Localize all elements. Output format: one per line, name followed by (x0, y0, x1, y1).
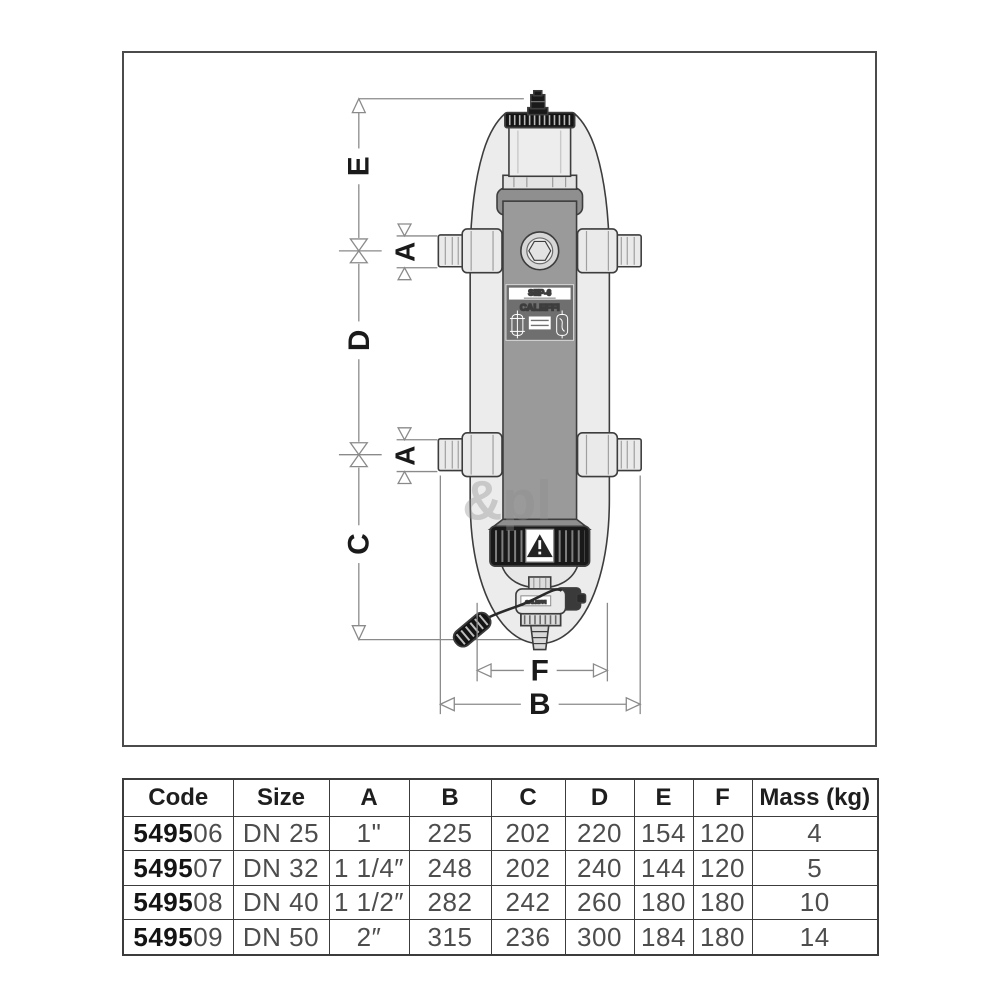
code-prefix: 5495 (133, 853, 193, 883)
table-header-row: Code Size A B C D E F Mass (kg) (123, 779, 878, 817)
cell-d: 240 (565, 851, 634, 885)
dim-label-C: C (343, 533, 376, 555)
open-triangle-arrow-icon (352, 99, 365, 113)
cell-c: 236 (491, 920, 565, 955)
cell-c: 202 (491, 817, 565, 851)
table-row: 549506 DN 25 1" 225 202 220 154 120 4 (123, 817, 878, 851)
table-row: 549509 DN 50 2″ 315 236 300 184 180 14 (123, 920, 878, 955)
bowtie-level-marker-icon (339, 239, 382, 263)
code-prefix: 5495 (133, 887, 193, 917)
cell-code: 549506 (123, 817, 233, 851)
open-triangle-arrow-icon (626, 698, 640, 711)
cell-size: DN 25 (233, 817, 329, 851)
cell-size: DN 32 (233, 851, 329, 885)
open-triangle-arrow-icon (398, 268, 411, 280)
union-nut-bottom-right (578, 433, 642, 477)
cell-f: 120 (693, 851, 752, 885)
cell-b: 315 (409, 920, 491, 955)
vent-cap (528, 91, 548, 115)
hose-barb (531, 626, 549, 650)
hydraulic-separator-drawing: E D C A A (124, 53, 875, 745)
open-triangle-arrow-icon (477, 664, 491, 677)
product-label: SEP-6 CALEFFI (506, 285, 574, 341)
cell-mass: 14 (752, 920, 878, 955)
hose-ring (521, 614, 561, 626)
cell-code: 549508 (123, 885, 233, 919)
union-nut-top-right (578, 229, 642, 273)
cell-mass: 4 (752, 817, 878, 851)
cell-d: 220 (565, 817, 634, 851)
cell-d: 260 (565, 885, 634, 919)
cell-f: 180 (693, 920, 752, 955)
dim-label-A-bottom: A (389, 446, 420, 466)
header-b: B (409, 779, 491, 817)
cell-b: 225 (409, 817, 491, 851)
dim-label-D: D (343, 330, 376, 352)
table-row: 549508 DN 40 1 1/2″ 282 242 260 180 180 … (123, 885, 878, 919)
code-prefix: 5495 (133, 818, 193, 848)
separator-device: SEP-6 CALEFFI (438, 91, 641, 650)
header-mass: Mass (kg) (752, 779, 878, 817)
warning-triangle-icon (526, 529, 554, 562)
open-triangle-arrow-icon (398, 472, 411, 484)
cell-e: 154 (634, 817, 693, 851)
code-suffix: 06 (193, 818, 223, 848)
code-prefix: 5495 (133, 922, 193, 952)
catalog-page: { "drawing": { "dims": { "e": "E", "d": … (0, 0, 1000, 1000)
dimensions-table: Code Size A B C D E F Mass (kg) 549506 D… (122, 778, 879, 956)
cell-b: 282 (409, 885, 491, 919)
cell-size: DN 40 (233, 885, 329, 919)
label-spec-box (529, 316, 551, 329)
cell-d: 300 (565, 920, 634, 955)
header-code: Code (123, 779, 233, 817)
cell-e: 180 (634, 885, 693, 919)
open-triangle-arrow-icon (352, 626, 365, 640)
open-triangle-arrow-icon (593, 664, 607, 677)
header-c: C (491, 779, 565, 817)
hex-plug (521, 232, 559, 270)
open-triangle-arrow-icon (398, 428, 411, 440)
header-d: D (565, 779, 634, 817)
open-triangle-arrow-icon (440, 698, 454, 711)
cell-c: 242 (491, 885, 565, 919)
dim-label-E: E (343, 156, 376, 176)
drain-cap (450, 609, 493, 650)
cell-mass: 10 (752, 885, 878, 919)
label-model-text: SEP-6 (528, 289, 552, 298)
cell-f: 120 (693, 817, 752, 851)
cell-mass: 5 (752, 851, 878, 885)
cell-c: 202 (491, 851, 565, 885)
cell-a: 1" (329, 817, 409, 851)
label-brand-text: CALEFFI (520, 303, 560, 314)
dim-label-F: F (531, 654, 549, 687)
cell-a: 1 1/4″ (329, 851, 409, 885)
header-size: Size (233, 779, 329, 817)
cell-code: 549509 (123, 920, 233, 955)
technical-drawing-frame: E D C A A (122, 51, 877, 747)
code-suffix: 07 (193, 853, 223, 883)
air-vent (503, 91, 577, 189)
watermark-text: &pl (462, 469, 552, 531)
cell-e: 184 (634, 920, 693, 955)
table-row: 549507 DN 32 1 1/4″ 248 202 240 144 120 … (123, 851, 878, 885)
code-suffix: 08 (193, 887, 223, 917)
code-suffix: 09 (193, 922, 223, 952)
header-f: F (693, 779, 752, 817)
header-e: E (634, 779, 693, 817)
union-nut-top-left (438, 229, 502, 273)
header-a: A (329, 779, 409, 817)
cell-f: 180 (693, 885, 752, 919)
cell-size: DN 50 (233, 920, 329, 955)
dim-label-A-top: A (389, 242, 420, 262)
cell-a: 2″ (329, 920, 409, 955)
cell-b: 248 (409, 851, 491, 885)
cell-a: 1 1/2″ (329, 885, 409, 919)
cell-e: 144 (634, 851, 693, 885)
bowtie-level-marker-icon (339, 443, 382, 467)
open-triangle-arrow-icon (398, 224, 411, 236)
cell-code: 549507 (123, 851, 233, 885)
dim-label-B: B (529, 688, 551, 721)
